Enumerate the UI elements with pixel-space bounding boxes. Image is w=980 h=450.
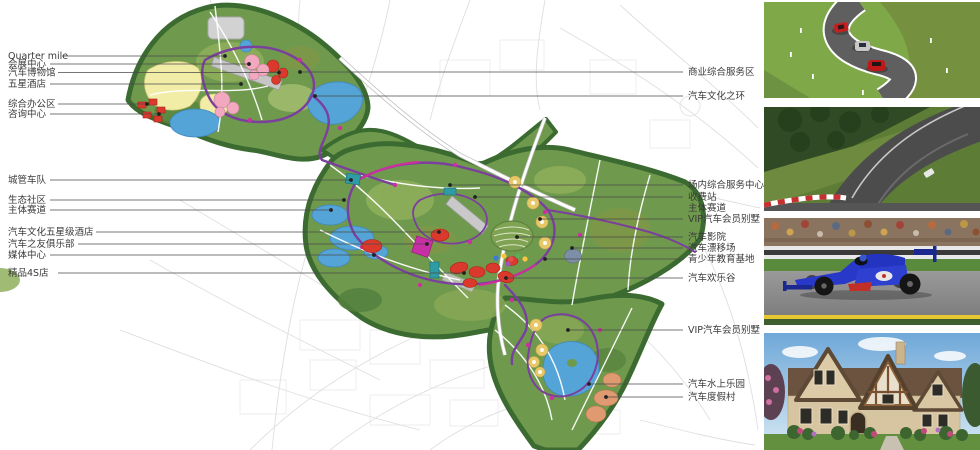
label-five-star-hotel: 五星酒店 [8, 78, 46, 90]
label-water-park: 汽车水上乐园 [688, 378, 745, 390]
label-auto-fun-valley: 汽车欢乐谷 [688, 272, 736, 284]
auto-museum-building [208, 17, 244, 39]
photo-formula-one [764, 218, 980, 325]
label-info-center: 咨询中心 [8, 108, 47, 120]
label-auto-friends-club: 汽车之友俱乐部 [8, 238, 75, 250]
label-auto-cinema: 汽车影院 [688, 231, 727, 243]
label-youth-education-base: 青少年教育基地 [688, 253, 755, 265]
drift-pad [565, 249, 582, 263]
label-city-fleet: 城管车队 [8, 174, 47, 186]
master-plan-board: Quarter mile 会展中心 汽车博物馆 五星酒店 综合办公区 咨询中心 … [0, 0, 980, 450]
label-main-circuit-left: 主体赛道 [8, 204, 47, 216]
label-drift-field: 汽车漂移场 [688, 242, 736, 254]
label-auto-resort: 汽车度假村 [688, 391, 736, 403]
label-main-circuit-right: 主体赛道 [688, 202, 727, 214]
photo-luxury-villa [757, 333, 980, 450]
label-toll-station: 收费站 [688, 191, 717, 203]
label-media-center: 媒体中心 [8, 249, 47, 261]
label-vip-villa-2: VIP汽车会员别墅 [688, 324, 761, 336]
master-plan-figure: Quarter mile 会展中心 汽车博物馆 五星酒店 综合办公区 咨询中心 … [0, 0, 980, 450]
label-auto-museum: 汽车博物馆 [8, 67, 56, 79]
label-auto-culture-ring: 汽车文化之环 [688, 90, 745, 102]
label-vip-villa-1: VIP汽车会员别墅 [688, 213, 761, 225]
label-infield-service-center: 场内综合服务中心 [688, 179, 765, 191]
label-culture-hotel: 汽车文化五星级酒店 [8, 226, 94, 238]
drive-in-cinema-oval [491, 221, 533, 251]
photo-winding-road [764, 0, 980, 100]
label-4s-store: 精品4S店 [8, 267, 49, 279]
photo-track-corner [764, 96, 980, 216]
label-commercial-service-area: 商业综合服务区 [688, 66, 755, 78]
